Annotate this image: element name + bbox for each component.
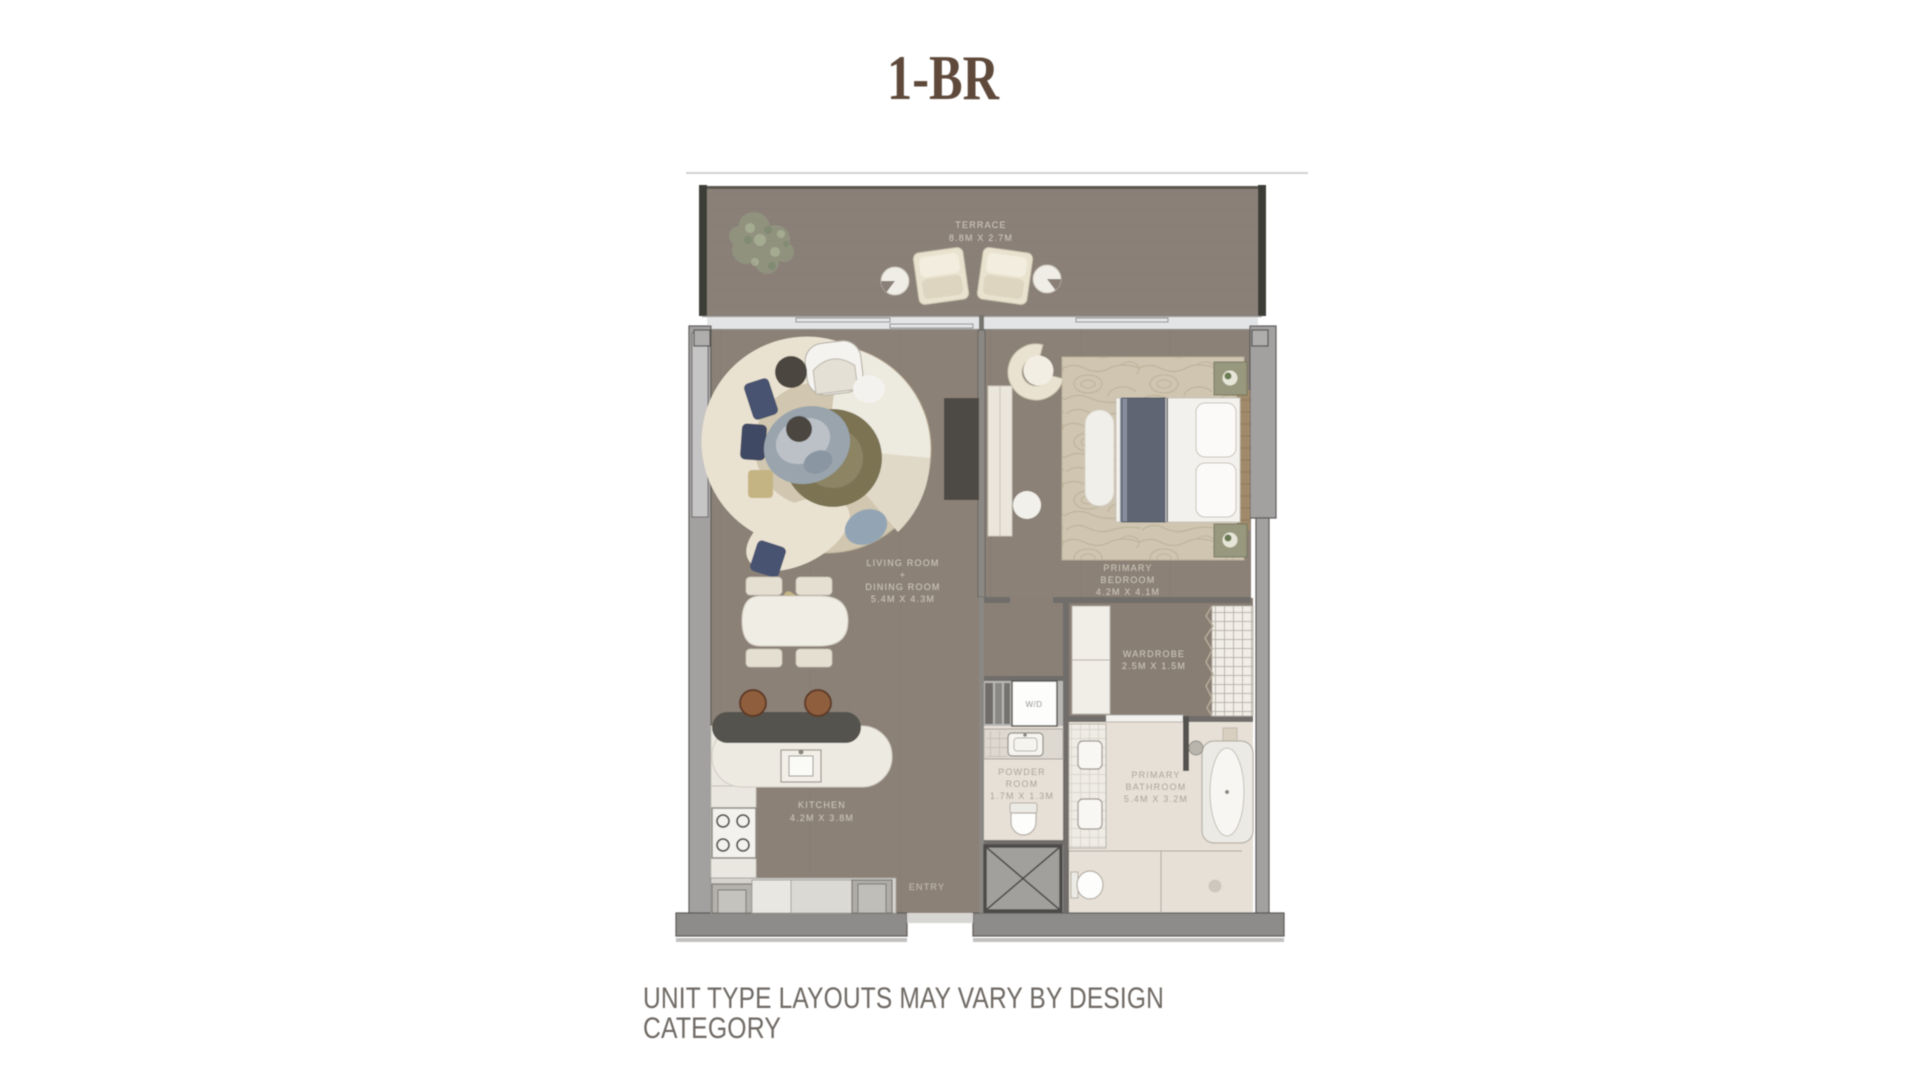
svg-text:BEDROOM: BEDROOM bbox=[1101, 575, 1156, 585]
svg-text:PRIMARY: PRIMARY bbox=[1131, 770, 1180, 780]
svg-text:DINING ROOM: DINING ROOM bbox=[865, 582, 940, 592]
svg-text:TERRACE: TERRACE bbox=[955, 220, 1006, 230]
svg-text:PRIMARY: PRIMARY bbox=[1103, 563, 1152, 573]
svg-text:2.5M X 1.5M: 2.5M X 1.5M bbox=[1122, 661, 1186, 671]
svg-text:1.7M X 1.3M: 1.7M X 1.3M bbox=[990, 791, 1054, 801]
svg-text:POWDER: POWDER bbox=[998, 767, 1046, 777]
svg-text:UNIT TYPE LAYOUTS MAY VARY BY: UNIT TYPE LAYOUTS MAY VARY BY DESIGN bbox=[643, 982, 1164, 1015]
svg-text:4.2M X 3.8M: 4.2M X 3.8M bbox=[790, 813, 854, 823]
svg-text:8.8M X 2.7M: 8.8M X 2.7M bbox=[949, 233, 1013, 243]
svg-text:+: + bbox=[900, 570, 906, 580]
svg-text:4.2M X 4.1M: 4.2M X 4.1M bbox=[1096, 587, 1160, 597]
svg-text:KITCHEN: KITCHEN bbox=[798, 800, 846, 810]
svg-text:5.4M X 4.3M: 5.4M X 4.3M bbox=[871, 594, 935, 604]
svg-text:5.4M X 3.2M: 5.4M X 3.2M bbox=[1124, 794, 1188, 804]
svg-text:BATHROOM: BATHROOM bbox=[1126, 782, 1187, 792]
svg-text:ROOM: ROOM bbox=[1006, 779, 1039, 789]
svg-text:LIVING ROOM: LIVING ROOM bbox=[866, 558, 939, 568]
svg-text:1-BR: 1-BR bbox=[887, 43, 1000, 113]
svg-text:CATEGORY: CATEGORY bbox=[643, 1012, 781, 1045]
svg-text:ENTRY: ENTRY bbox=[909, 882, 945, 892]
svg-text:WARDROBE: WARDROBE bbox=[1123, 649, 1185, 659]
svg-text:W/D: W/D bbox=[1025, 700, 1042, 709]
